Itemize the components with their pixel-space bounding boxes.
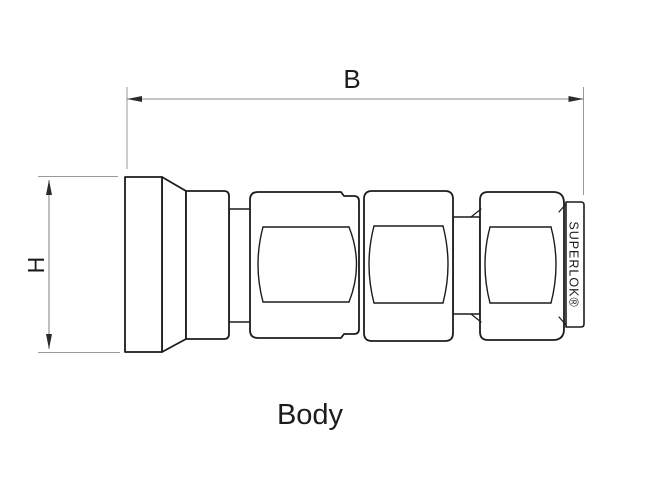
b-dimension-label: B — [343, 64, 360, 94]
fitting-outline: SUPERLOK® — [125, 177, 584, 352]
neck-1 — [229, 209, 252, 322]
b-dimension: B — [127, 64, 584, 195]
b-arrow-right — [569, 96, 584, 102]
brand-engraving: SUPERLOK® — [567, 221, 581, 307]
part-label: Body — [277, 399, 344, 431]
hex-nut-2 — [364, 191, 453, 341]
cone-transition — [162, 177, 186, 352]
shoulder-cylinder — [186, 191, 229, 339]
fitting-body-drawing: B H — [0, 0, 650, 497]
hex-nut-3 — [480, 192, 564, 340]
neck-2 — [453, 217, 480, 314]
flange — [125, 177, 162, 352]
hex-nut-1 — [250, 192, 359, 338]
b-arrow-left — [127, 96, 142, 102]
technical-drawing-page: B H — [0, 0, 650, 497]
h-arrow-top — [46, 180, 52, 195]
h-arrow-bottom — [46, 334, 52, 349]
h-dimension-label: H — [23, 257, 49, 274]
h-dimension: H — [23, 177, 120, 353]
